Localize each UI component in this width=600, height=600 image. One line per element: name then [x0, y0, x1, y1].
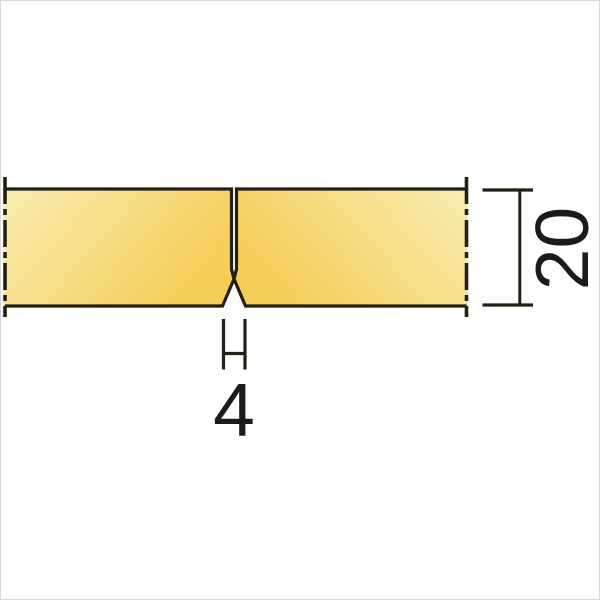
thickness-dim-label: 20 — [520, 207, 600, 290]
groove-dim-label: 4 — [213, 368, 255, 452]
groove-dimension — [224, 319, 246, 370]
drawing-canvas: 20 4 — [0, 0, 600, 600]
cross-section-diagram: 20 4 — [1, 1, 600, 600]
panel-right — [234, 189, 468, 306]
panel-left — [4, 189, 235, 306]
